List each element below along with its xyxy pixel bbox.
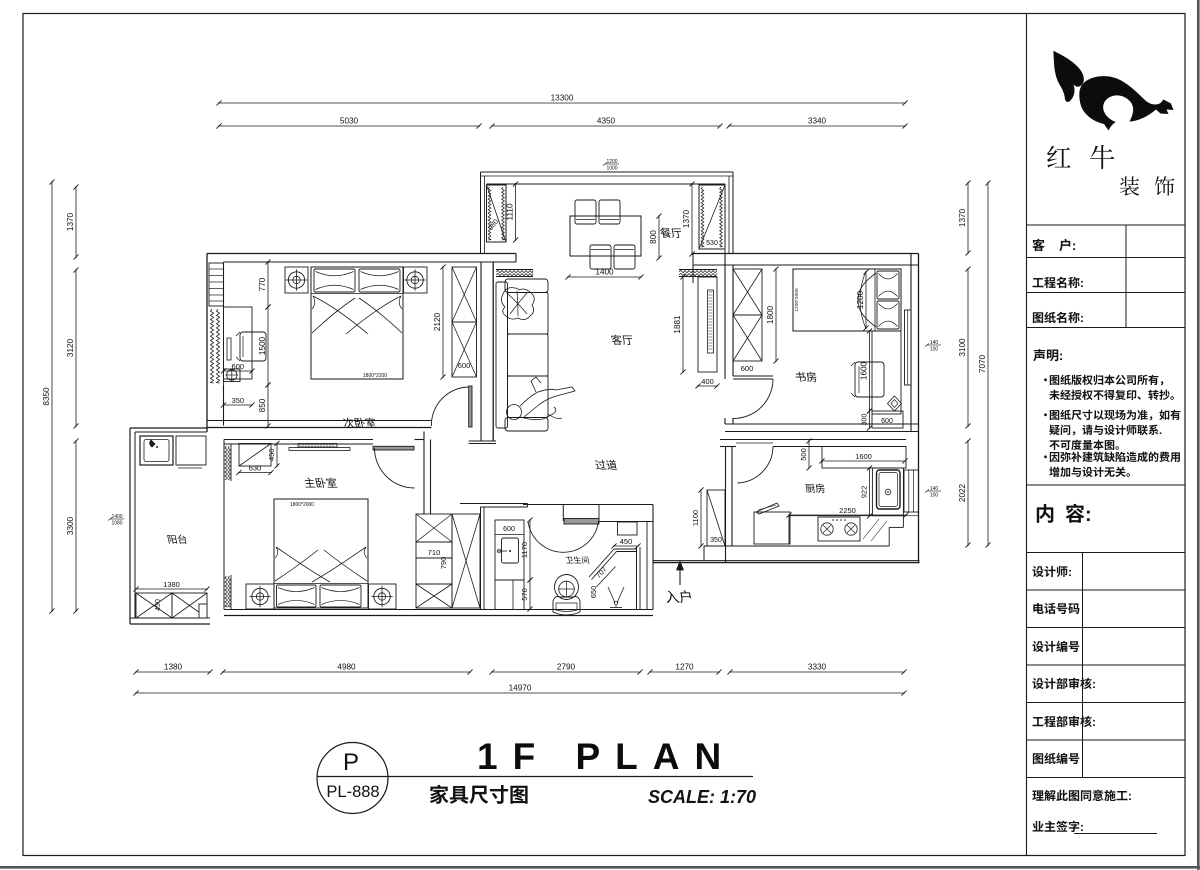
svg-text:14970: 14970 — [509, 684, 532, 693]
svg-text:3120: 3120 — [66, 338, 75, 357]
svg-text:600: 600 — [458, 361, 471, 370]
svg-text:1370: 1370 — [682, 209, 691, 228]
svg-text:1080: 1080 — [111, 520, 122, 526]
svg-text:5030: 5030 — [340, 117, 359, 126]
svg-text:1F PLAN: 1F PLAN — [477, 736, 736, 777]
svg-text::: : — [1059, 348, 1063, 363]
svg-text:1800: 1800 — [766, 305, 775, 324]
svg-text:1800*2200: 1800*2200 — [363, 373, 387, 379]
svg-text:1370: 1370 — [958, 208, 967, 227]
svg-text:3340: 3340 — [808, 117, 827, 126]
svg-text:1380: 1380 — [163, 580, 180, 589]
svg-text:600: 600 — [503, 526, 515, 533]
svg-text::: : — [1085, 504, 1092, 526]
svg-text:790: 790 — [439, 557, 448, 570]
svg-text:350: 350 — [232, 396, 245, 405]
svg-text:1800*2000: 1800*2000 — [290, 502, 314, 508]
svg-text:600: 600 — [881, 418, 893, 425]
svg-text:1370: 1370 — [66, 212, 75, 231]
svg-text:1881: 1881 — [673, 315, 682, 334]
svg-text:530: 530 — [706, 240, 718, 247]
svg-text::: : — [1080, 276, 1084, 290]
svg-text:1200*2000: 1200*2000 — [794, 288, 800, 312]
svg-text:3100: 3100 — [958, 338, 967, 357]
svg-text:850: 850 — [258, 398, 267, 412]
svg-text::: : — [1072, 238, 1076, 253]
svg-text:1100: 1100 — [691, 510, 700, 526]
svg-text:400: 400 — [701, 377, 714, 386]
svg-text:3330: 3330 — [808, 663, 827, 672]
svg-text:630: 630 — [249, 464, 262, 473]
svg-text:770: 770 — [258, 277, 267, 291]
svg-text::: : — [1092, 677, 1096, 691]
svg-text:600: 600 — [232, 362, 245, 371]
svg-text:922: 922 — [860, 486, 869, 499]
svg-text:1270: 1270 — [675, 663, 694, 672]
svg-text:1200: 1200 — [856, 290, 865, 309]
svg-text:1600: 1600 — [855, 452, 872, 461]
svg-text:300: 300 — [862, 414, 869, 426]
svg-text:1000: 1000 — [606, 165, 617, 171]
svg-text:450: 450 — [620, 537, 633, 546]
svg-text:650: 650 — [589, 586, 598, 599]
svg-text:1110: 1110 — [506, 203, 515, 220]
svg-text::: : — [1128, 789, 1132, 803]
svg-text:800: 800 — [649, 230, 658, 244]
svg-text:350: 350 — [710, 537, 722, 544]
svg-text:8350: 8350 — [42, 387, 51, 406]
svg-text::: : — [1080, 311, 1084, 325]
svg-text:4980: 4980 — [337, 663, 356, 672]
svg-text:500: 500 — [799, 448, 808, 461]
svg-text:SCALE: 1:70: SCALE: 1:70 — [648, 787, 756, 807]
svg-text:1400: 1400 — [595, 268, 614, 277]
svg-text:1500: 1500 — [258, 336, 267, 355]
svg-text:P: P — [343, 749, 359, 776]
svg-text:710: 710 — [428, 548, 441, 557]
svg-text:570: 570 — [520, 588, 529, 601]
svg-text:100: 100 — [930, 492, 939, 498]
svg-text:2790: 2790 — [557, 663, 576, 672]
svg-text:1170: 1170 — [520, 542, 529, 558]
svg-text:PL-888: PL-888 — [326, 783, 379, 801]
svg-text:2120: 2120 — [433, 312, 442, 331]
svg-text:1600: 1600 — [860, 361, 869, 380]
svg-text:450: 450 — [155, 599, 162, 611]
svg-text:7070: 7070 — [978, 354, 987, 373]
svg-text::: : — [1068, 565, 1072, 579]
svg-text:4350: 4350 — [597, 117, 616, 126]
svg-text:600: 600 — [741, 364, 754, 373]
svg-text:3300: 3300 — [66, 516, 75, 535]
svg-text::: : — [1092, 715, 1096, 729]
svg-text:450: 450 — [267, 449, 276, 462]
svg-text:2022: 2022 — [958, 483, 967, 502]
svg-text:2250: 2250 — [839, 506, 856, 515]
svg-text:.: . — [1159, 425, 1162, 437]
svg-text:1380: 1380 — [164, 663, 183, 672]
svg-text:13300: 13300 — [551, 94, 574, 103]
svg-text:100: 100 — [930, 346, 939, 352]
svg-text::: : — [1080, 820, 1084, 834]
